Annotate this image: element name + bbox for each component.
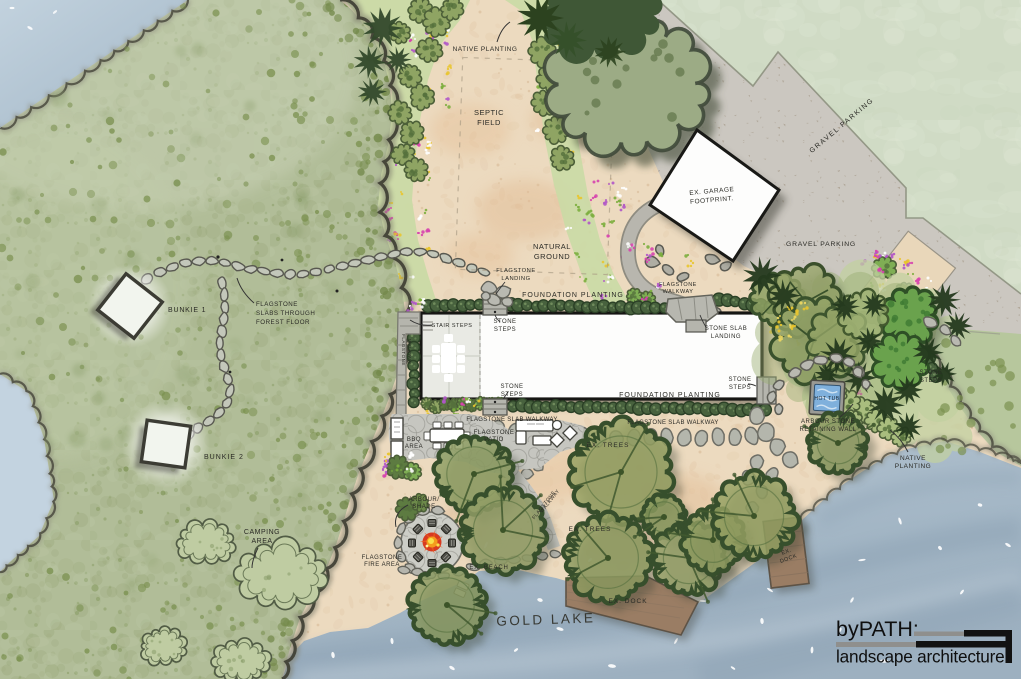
svg-text:NATURAL: NATURAL: [533, 242, 571, 251]
svg-text:FOUNDATION PLANTING: FOUNDATION PLANTING: [619, 392, 721, 399]
svg-text:EX. DOCK: EX. DOCK: [608, 598, 647, 605]
svg-text:PATIO: PATIO: [484, 437, 504, 443]
svg-text:GROUND: GROUND: [534, 252, 570, 261]
svg-text:LANDING: LANDING: [711, 334, 741, 340]
svg-text:BUNKIE 1: BUNKIE 1: [168, 307, 206, 314]
svg-text:SLABS THROUGH: SLABS THROUGH: [256, 310, 315, 317]
svg-text:FLAGSTONE SLAB WALKWAY: FLAGSTONE SLAB WALKWAY: [466, 417, 557, 423]
svg-text:FIELD: FIELD: [477, 118, 501, 127]
svg-text:LANDING: LANDING: [501, 276, 530, 282]
svg-text:STONE: STONE: [919, 370, 942, 376]
svg-text:STONE: STONE: [728, 377, 751, 383]
svg-text:STEPS: STEPS: [494, 327, 516, 333]
svg-text:AREA: AREA: [251, 538, 272, 545]
svg-text:STONE: STONE: [493, 319, 516, 325]
svg-text:FLAGSTONE: FLAGSTONE: [401, 334, 406, 366]
svg-text:ARBOUR/: ARBOUR/: [409, 497, 440, 503]
svg-text:STAIR STEPS: STAIR STEPS: [432, 323, 473, 329]
svg-text:PLANTING: PLANTING: [895, 463, 932, 470]
svg-text:GRAVEL PARKING: GRAVEL PARKING: [786, 241, 856, 248]
svg-text:landscape architecture: landscape architecture: [836, 647, 1005, 667]
svg-text:STEPS: STEPS: [729, 385, 751, 391]
svg-text:BBQ: BBQ: [407, 437, 421, 443]
svg-text:STEPS: STEPS: [920, 378, 942, 384]
svg-text:WALKWAY: WALKWAY: [663, 289, 694, 295]
svg-text:FOREST FLOOR: FOREST FLOOR: [256, 319, 310, 326]
svg-text:BUNKIE 2: BUNKIE 2: [204, 454, 244, 461]
svg-text:EX. TREES: EX. TREES: [569, 526, 612, 533]
svg-text:CAMPING: CAMPING: [244, 529, 280, 536]
svg-text:FIRE AREA: FIRE AREA: [364, 562, 400, 568]
svg-text:STONE SLAB: STONE SLAB: [705, 326, 748, 332]
svg-text:ARBOUR STONE: ARBOUR STONE: [801, 419, 855, 425]
svg-text:SHADE: SHADE: [412, 504, 435, 510]
svg-text:EX. TREES: EX. TREES: [587, 442, 630, 449]
svg-text:EX. BEACH: EX. BEACH: [469, 565, 508, 571]
svg-text:NATIVE PLANTING: NATIVE PLANTING: [453, 46, 518, 53]
svg-text:byPATH:: byPATH:: [836, 617, 919, 641]
svg-text:FOUNDATION PLANTING: FOUNDATION PLANTING: [522, 292, 624, 299]
svg-text:NATIVE: NATIVE: [900, 455, 926, 462]
svg-text:FLAGSTONE: FLAGSTONE: [496, 268, 536, 274]
svg-text:FLAGSTONE: FLAGSTONE: [474, 430, 515, 436]
svg-text:HOT TUB: HOT TUB: [814, 396, 839, 402]
svg-text:FLAGSTONE SLAB WALKWAY: FLAGSTONE SLAB WALKWAY: [627, 420, 718, 426]
svg-text:FLAGSTONE: FLAGSTONE: [659, 282, 697, 288]
svg-text:FLAGSTONE: FLAGSTONE: [362, 555, 403, 561]
svg-text:FLAGSTONE: FLAGSTONE: [256, 301, 298, 308]
svg-text:SEPTIC: SEPTIC: [474, 108, 504, 117]
svg-text:RETAINING WALL: RETAINING WALL: [799, 427, 856, 433]
svg-text:WALKWAY: WALKWAY: [407, 339, 412, 365]
svg-text:STONE: STONE: [500, 384, 523, 390]
svg-text:AREA: AREA: [405, 444, 423, 450]
